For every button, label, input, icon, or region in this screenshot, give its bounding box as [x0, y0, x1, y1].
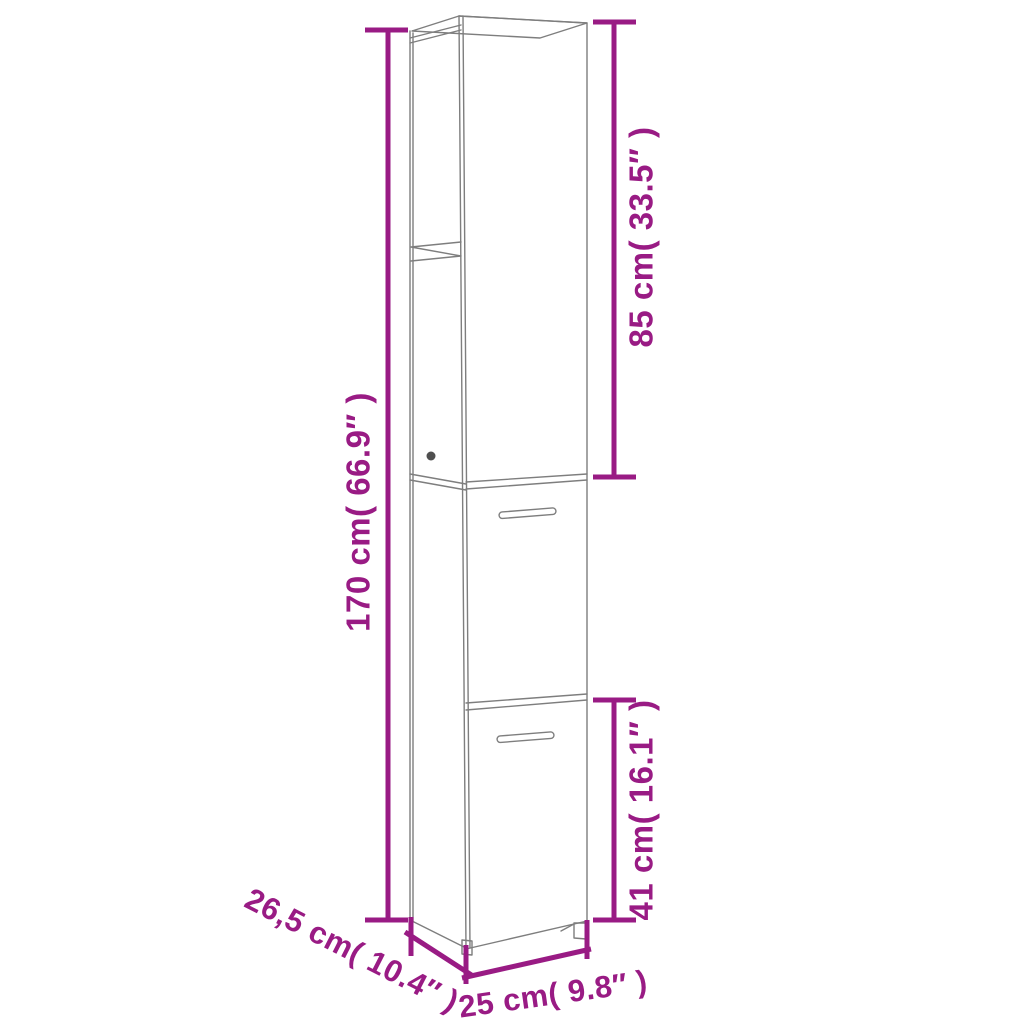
dimension-width — [462, 920, 591, 978]
cabinet-side-panel — [410, 31, 466, 948]
cabinet-top-face — [412, 16, 587, 38]
label-upper-height: 85 cm( 33.5″ ) — [623, 127, 660, 348]
middle-door-bottom-division — [466, 694, 587, 710]
product-dimension-image: 170 cm( 66.9″ ) 85 cm( 33.5″ ) 41 cm( 16… — [0, 0, 1024, 1024]
right-foot — [561, 923, 586, 939]
middle-door-handle — [499, 508, 556, 519]
cabinet-drawing — [410, 16, 587, 955]
lower-door-handle — [497, 732, 554, 743]
shelf-line — [411, 242, 461, 261]
label-total-height: 170 cm( 66.9″ ) — [340, 392, 377, 632]
cabinet-front-panel — [459, 16, 587, 949]
upper-lower-junction — [410, 474, 587, 490]
side-top-frame-lines — [410, 25, 461, 43]
dimension-diagram: 170 cm( 66.9″ ) 85 cm( 33.5″ ) 41 cm( 16… — [0, 0, 1024, 1024]
label-lower-height: 41 cm( 16.1″ ) — [623, 700, 660, 921]
cam-lock-dot — [427, 452, 436, 461]
